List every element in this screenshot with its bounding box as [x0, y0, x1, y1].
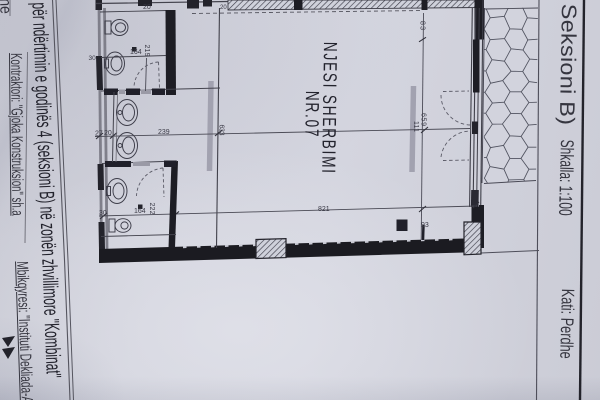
- svg-text:30: 30: [99, 210, 107, 217]
- svg-text:27: 27: [95, 131, 103, 138]
- svg-text:20: 20: [143, 4, 151, 11]
- svg-text:633: 633: [218, 125, 225, 136]
- svg-text:239: 239: [158, 129, 170, 136]
- svg-text:20: 20: [104, 130, 112, 137]
- svg-text:222: 222: [148, 203, 155, 215]
- svg-text:83: 83: [419, 21, 426, 30]
- svg-text:30: 30: [89, 55, 97, 62]
- svg-text:20: 20: [220, 5, 227, 11]
- svg-text:659: 659: [420, 113, 427, 126]
- svg-text:93: 93: [421, 222, 429, 229]
- svg-text:821: 821: [318, 206, 330, 213]
- svg-text:164: 164: [134, 208, 146, 215]
- svg-text:164: 164: [130, 49, 142, 56]
- svg-text:111: 111: [412, 121, 419, 132]
- svg-text:219: 219: [143, 45, 150, 57]
